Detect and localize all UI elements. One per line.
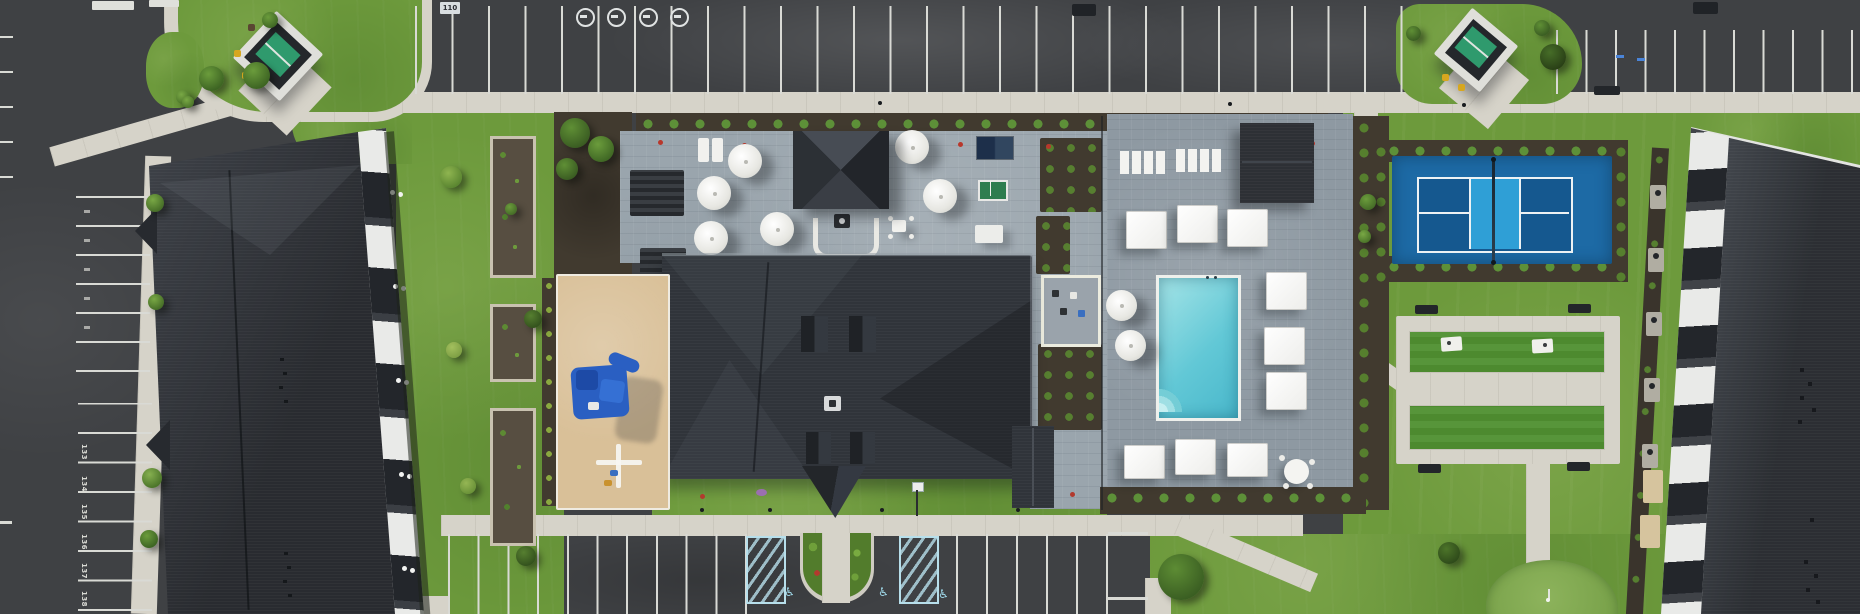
walk-lamps-north — [878, 101, 882, 105]
court-mulch-left — [1370, 140, 1388, 282]
stall-number: 134 — [80, 476, 88, 492]
stall-number: 135 — [80, 504, 88, 520]
cornhole-board-2-hole — [1543, 343, 1547, 347]
deck-bed-south — [1038, 344, 1102, 430]
play-structure-deck — [588, 402, 599, 410]
sidewalk-top — [228, 92, 1860, 113]
cornhole-board-1 — [1441, 336, 1463, 351]
cabana — [1177, 205, 1218, 243]
pickleball-kitchen — [1469, 179, 1521, 249]
tree-right-lawn-big — [1158, 554, 1204, 600]
cabana — [1264, 327, 1305, 365]
tree-right-lawn — [1438, 542, 1460, 564]
tree-kiosk-right — [1540, 44, 1566, 70]
bench-se — [1567, 462, 1590, 471]
pickleball-net-posts — [1491, 157, 1496, 162]
tree — [199, 66, 224, 91]
fire-pit-flame — [839, 218, 845, 224]
deck-bed-north — [1040, 138, 1102, 212]
play-structure-canopy-1 — [576, 370, 598, 390]
pool-pavilion-roof — [1240, 123, 1314, 203]
stall-number: 136 — [80, 534, 88, 550]
pool-pavilion-ridge — [1242, 161, 1312, 163]
parking-lines-bottom-left — [448, 534, 748, 614]
bench-ne — [1568, 304, 1591, 313]
bush-kiosk-right-1 — [1406, 26, 1421, 41]
pickleball-centerline-right — [1519, 212, 1569, 214]
parking-end-line-upper — [1108, 532, 1148, 535]
stall-number-dashes-upper — [84, 192, 90, 342]
umbrella-pool-1 — [1106, 290, 1137, 321]
crosswalk-bar-2 — [149, 0, 179, 7]
kiosk-left-benches — [234, 50, 241, 57]
flowers-red-south — [700, 494, 705, 499]
reserved-circle-4 — [670, 8, 689, 27]
pool-fence-west — [1101, 116, 1103, 510]
cabana — [1126, 211, 1167, 249]
ping-pong-net-line — [990, 181, 991, 196]
clubhouse-dormer-1b — [849, 316, 876, 352]
clubhouse-dormer-2a — [806, 432, 831, 464]
patio-pavilion-roof — [793, 131, 889, 209]
reserved-circle-2 — [607, 8, 626, 27]
patio-loungers — [698, 138, 709, 162]
drain-mat-1 — [1072, 4, 1096, 16]
median-island-walk — [822, 533, 850, 603]
right-building-roof-vents — [1800, 368, 1804, 372]
umbrella — [697, 176, 731, 210]
park-bench-ne — [1594, 86, 1620, 95]
tree — [516, 546, 536, 566]
right-building-awnings — [1643, 470, 1663, 503]
cabana — [1227, 209, 1268, 247]
flower-pots — [658, 140, 663, 145]
handicap-symbol-1: ♿ — [784, 586, 795, 598]
deck-loungers-group-1 — [1120, 151, 1168, 174]
umbrella-pool-2 — [1115, 330, 1146, 361]
stall-sign: 110 — [440, 2, 460, 14]
reserved-circle-1 — [576, 8, 595, 27]
basketball-pole — [916, 490, 918, 516]
parking-end-line-lower — [1108, 597, 1148, 600]
cabana — [1227, 443, 1268, 477]
hedge-deck-south — [1100, 487, 1366, 514]
bush-walk-right-2 — [1358, 230, 1371, 243]
tree — [148, 294, 164, 310]
umbrella — [923, 179, 957, 213]
tree — [140, 530, 158, 548]
tree — [243, 62, 270, 89]
left-building-roof-vents-2 — [284, 552, 288, 555]
stall-number: 137 — [80, 563, 88, 579]
clubhouse-se-wing-ridge — [1032, 428, 1034, 506]
blue-paint-specks — [1616, 55, 1624, 58]
deck-bed-middle — [1036, 216, 1070, 274]
island-left-lobe — [146, 32, 204, 108]
parking-lines-left-lower — [78, 403, 152, 611]
tree-strip-west-3 — [556, 158, 578, 180]
tree — [524, 310, 542, 328]
tree — [460, 478, 476, 494]
parking-lines-bottom-right — [956, 534, 1110, 614]
tree — [146, 194, 164, 212]
crosswalk-bar-1 — [92, 1, 134, 10]
deck-round-table — [1284, 459, 1309, 484]
pickleball-centerline-left — [1419, 212, 1469, 214]
tree — [262, 12, 278, 28]
tree — [446, 342, 462, 358]
pool-handrail — [1206, 276, 1209, 279]
cabana — [1124, 445, 1165, 479]
flowers-purple — [756, 489, 767, 496]
pool-steps — [1159, 385, 1187, 412]
court-mulch-right — [1610, 140, 1628, 282]
cornhole-lane-1 — [1409, 331, 1605, 373]
pickleball-net — [1492, 160, 1495, 262]
cornhole-board-1-hole — [1447, 341, 1451, 345]
clubhouse-cupola-vent — [829, 400, 836, 407]
parking-lines-top-right — [1556, 30, 1860, 94]
tree-strip-west-1 — [560, 118, 590, 148]
right-building-patio-pads — [1650, 185, 1666, 209]
deck-round-table-chairs — [1279, 455, 1285, 461]
handicap-aisle-2 — [899, 536, 939, 604]
patio-table-set — [892, 220, 906, 232]
shade-post-bar-v — [616, 444, 621, 488]
reserved-circle-3 — [639, 8, 658, 27]
tree-strip-west-2 — [588, 136, 614, 162]
bench-nw — [1415, 305, 1438, 314]
putting-green-hole — [1546, 598, 1550, 602]
patio-table-chairs — [888, 216, 893, 221]
umbrella — [760, 212, 794, 246]
handicap-aisle-1 — [746, 536, 786, 604]
planting-strip-playground-west — [542, 278, 556, 506]
handicap-symbol-2: ♿ — [878, 586, 889, 598]
bush-island-left — [182, 96, 194, 108]
drain-mat-2 — [1693, 2, 1718, 14]
bench-sw — [1418, 464, 1441, 473]
cabana — [1175, 439, 1216, 475]
clubhouse-dormer-2b — [850, 432, 875, 464]
grill-pad — [1041, 275, 1101, 347]
right-building-grills — [1655, 190, 1661, 196]
stall-number: 133 — [80, 444, 88, 460]
parking-lines-left-edge — [0, 16, 13, 178]
bush-kiosk-right-2 — [1534, 20, 1550, 36]
cornhole-lane-2 — [1409, 405, 1605, 450]
stall-number: 138 — [80, 591, 88, 607]
play-spring-toy — [610, 470, 618, 476]
umbrella — [694, 221, 728, 255]
tree — [440, 166, 462, 188]
aerial-photo-apartment-community: 110 133 134 135 136 137 138 ♿ ♿ ♿ — [0, 0, 1860, 614]
lawn-lamps-south — [700, 508, 704, 512]
solar-panels — [976, 136, 1014, 160]
tree — [142, 468, 162, 488]
bush-walk-right-1 — [1360, 194, 1376, 210]
clubhouse-eave-north — [662, 253, 1032, 256]
play-structure-canopy-2 — [599, 378, 626, 403]
cabana — [1266, 272, 1307, 310]
umbrella — [895, 130, 929, 164]
stall-mark-left-edge — [0, 521, 12, 524]
umbrella — [728, 144, 762, 178]
ping-pong-table — [978, 180, 1008, 201]
patio-white-table — [975, 225, 1003, 243]
parking-lines-top-main — [415, 6, 1405, 94]
tree — [505, 203, 517, 215]
cabana — [1266, 372, 1307, 410]
grill-pad-equipment — [1052, 290, 1059, 297]
left-building-roof-vents-1 — [280, 358, 284, 361]
basketball-backboard — [912, 482, 924, 492]
pergola-north — [630, 170, 684, 216]
handicap-symbol-3: ♿ — [938, 588, 949, 600]
deck-loungers-group-2 — [1176, 149, 1224, 172]
kiosk-right-benches — [1442, 74, 1449, 81]
clubhouse-dormer-1a — [801, 316, 828, 352]
garden-bed-3 — [490, 408, 536, 546]
